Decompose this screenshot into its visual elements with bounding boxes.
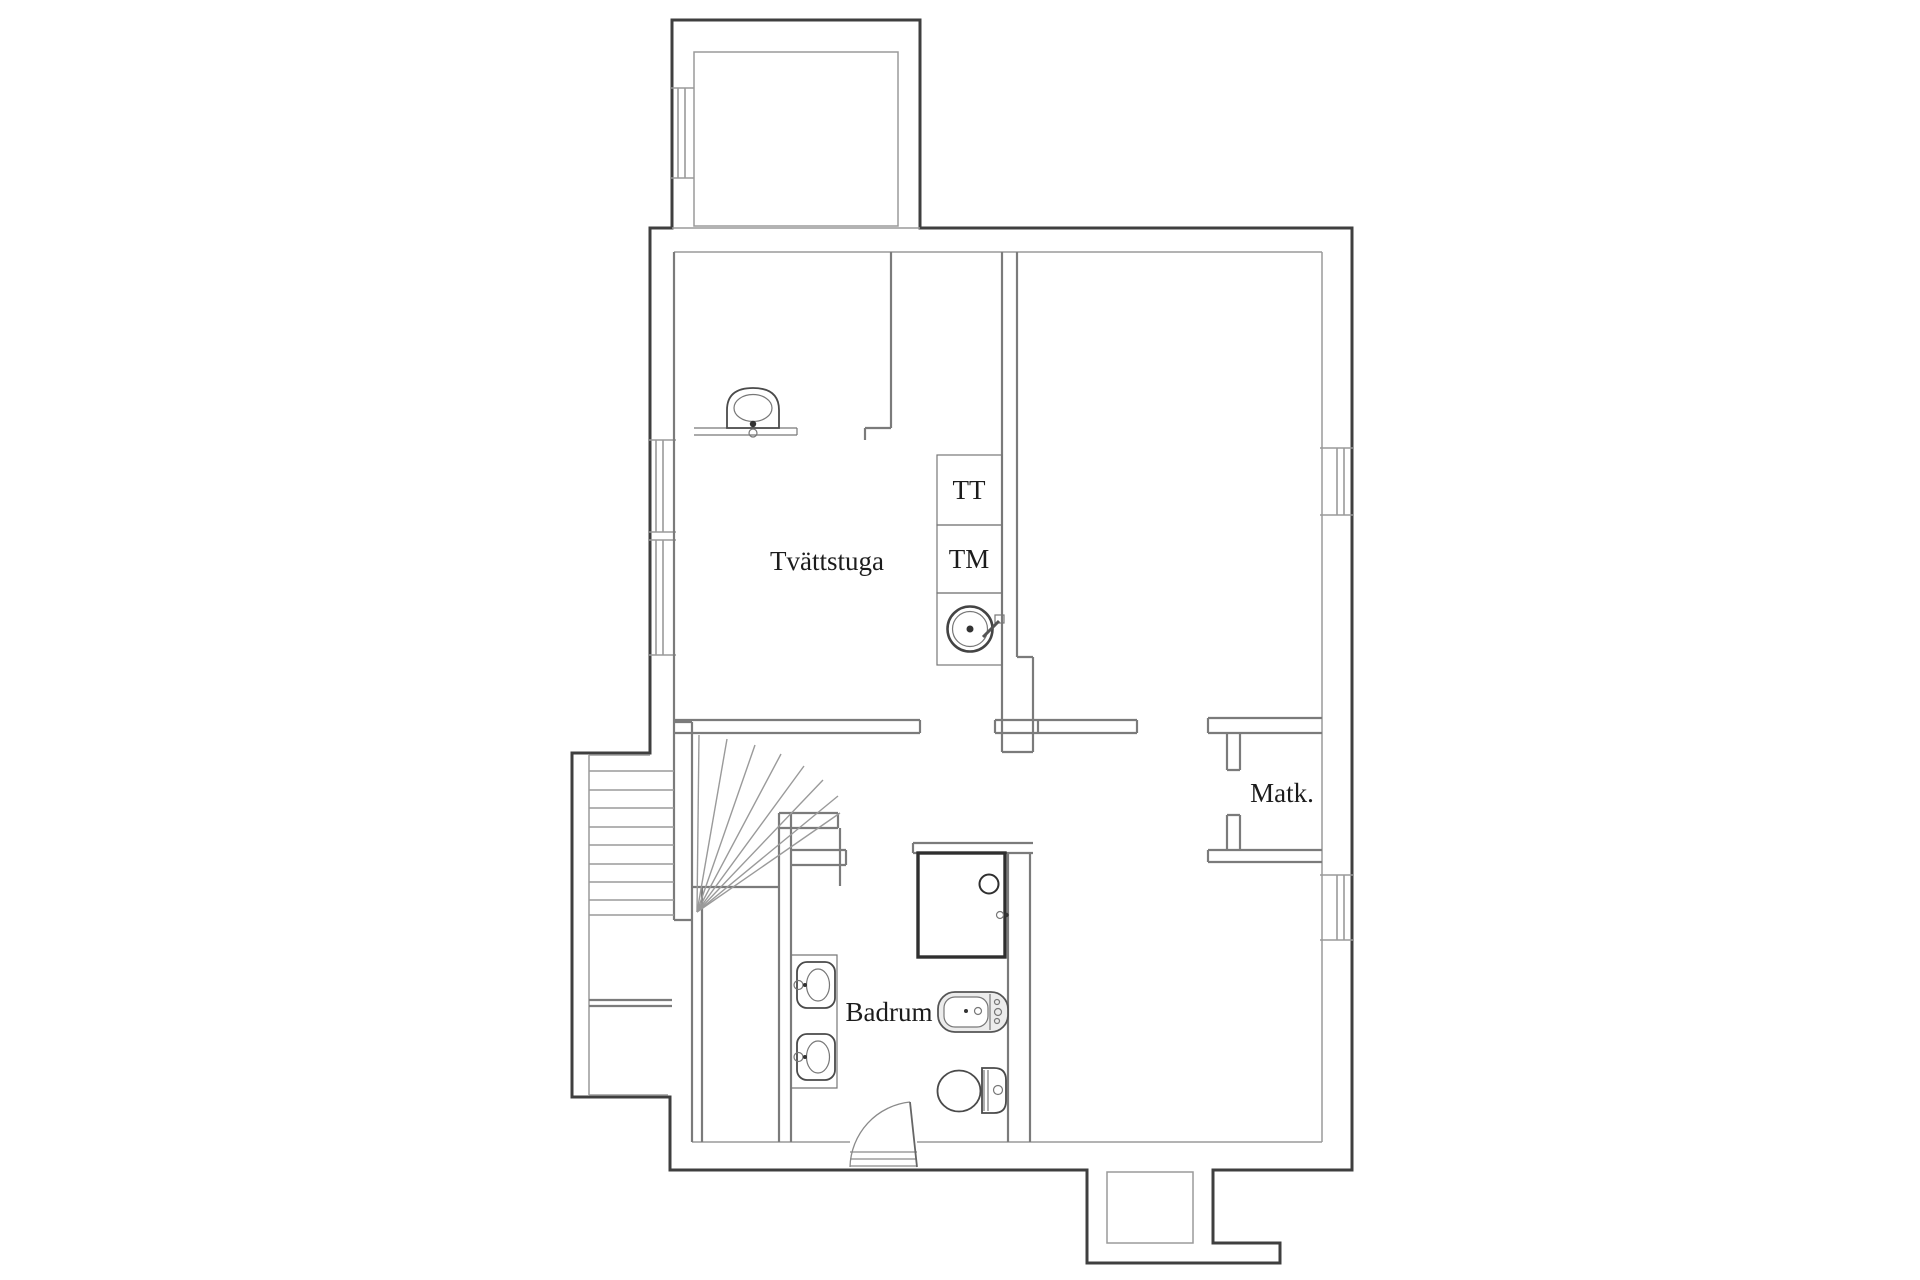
appliance-label-washer: TM <box>949 544 990 574</box>
room-label-bathroom: Badrum <box>846 997 933 1027</box>
washbasin-icon-upper <box>794 962 835 1008</box>
bathtub-icon <box>938 992 1008 1032</box>
room-label-laundry: Tvättstuga <box>770 546 884 576</box>
shower-cabin-icon <box>918 853 1009 957</box>
washbasin-icon-lower <box>794 1034 835 1080</box>
floor-plan-drawing: Tvättstuga TT TM Matk. Badrum <box>0 0 1920 1280</box>
appliance-label-dryer: TT <box>953 475 986 505</box>
room-label-pantry: Matk. <box>1250 778 1314 808</box>
toilet-icon <box>938 1068 1007 1113</box>
floor-plan-page: Tvättstuga TT TM Matk. Badrum <box>0 0 1920 1280</box>
